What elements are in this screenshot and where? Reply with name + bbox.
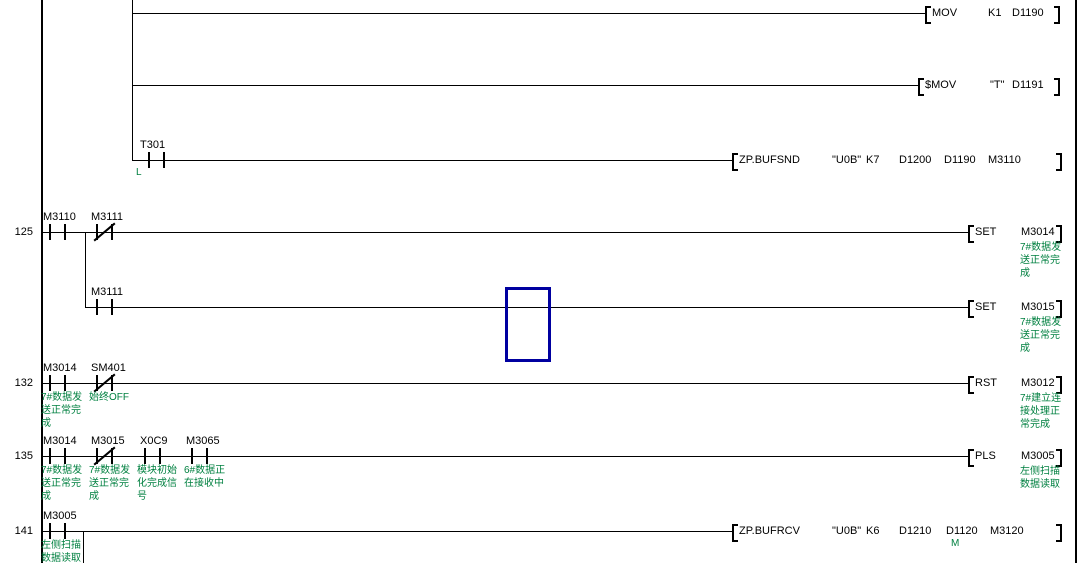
- ladder-editor-canvas: MOV K1 D1190 $MOV "T" D1191 T301 L ZP.BU…: [0, 0, 1080, 563]
- instruction-open-bracket: [732, 153, 738, 171]
- contact-m3111-nc[interactable]: [94, 224, 116, 240]
- rung-number-125: 125: [5, 226, 33, 238]
- instruction-open-bracket: [925, 6, 931, 24]
- contact-t301[interactable]: [146, 152, 168, 168]
- rung-line-141: [42, 531, 732, 532]
- annotation-contact-m3014: 7#数据发送正常完成: [41, 391, 86, 430]
- instruction-close-bracket: [1054, 6, 1060, 24]
- rung-number-132: 132: [5, 377, 33, 389]
- instruction-close-bracket: [1054, 78, 1060, 96]
- rung-line-135: [42, 456, 968, 457]
- contact-m3014[interactable]: [47, 375, 69, 391]
- annotation-contact-m3065: 6#数据正在接收中: [184, 464, 229, 490]
- contact-label-x0c9: X0C9: [140, 435, 168, 447]
- instruction-bufsnd[interactable]: ZP.BUFSND: [739, 154, 800, 167]
- rung-line-smov: [132, 85, 918, 86]
- annotation-m3015: 7#数据发送正常完成: [1020, 316, 1065, 355]
- instruction-bufrcv-arg3[interactable]: D1210: [899, 525, 931, 538]
- instruction-smov-arg2[interactable]: D1191: [1012, 79, 1044, 92]
- coil-device-m3005[interactable]: M3005: [1021, 450, 1055, 463]
- annotation-contact-x0c9: 模块初始化完成信号: [137, 464, 182, 503]
- contact-t301-marker: L: [136, 167, 142, 178]
- coil-set-m3014[interactable]: SET: [975, 226, 996, 239]
- instruction-open-bracket: [918, 78, 924, 96]
- top-branch-rail: [132, 0, 133, 161]
- instruction-close-bracket: [1056, 153, 1062, 171]
- rung-line-125: [42, 232, 968, 233]
- instruction-bufrcv-arg2[interactable]: K6: [866, 525, 879, 538]
- coil-open-bracket: [968, 225, 974, 243]
- rung-number-141: 141: [5, 525, 33, 537]
- contact-m3014-2[interactable]: [47, 448, 69, 464]
- instruction-bufrcv-arg1[interactable]: "U0B": [832, 525, 861, 538]
- annotation-m3014: 7#数据发送正常完成: [1020, 241, 1065, 280]
- contact-label-m3065: M3065: [186, 435, 220, 447]
- coil-open-bracket: [968, 449, 974, 467]
- contact-label-m3015-nc: M3015: [91, 435, 125, 447]
- contact-label-sm401-nc: SM401: [91, 362, 126, 374]
- annotation-contact-m3015: 7#数据发送正常完成: [89, 464, 134, 503]
- annotation-contact-m3005: 左侧扫描数据读取: [41, 539, 86, 563]
- contact-m3015-nc[interactable]: [94, 448, 116, 464]
- coil-device-m3015[interactable]: M3015: [1021, 301, 1055, 314]
- coil-open-bracket: [968, 300, 974, 318]
- contact-label-m3014: M3014: [43, 362, 77, 374]
- contact-label-m3005: M3005: [43, 510, 77, 522]
- branch-line-141: [83, 531, 84, 563]
- rung-line-132: [42, 383, 968, 384]
- contact-label-t301: T301: [140, 139, 165, 151]
- contact-m3110[interactable]: [47, 224, 69, 240]
- annotation-m3012: 7#建立连接处理正常完成: [1020, 392, 1065, 431]
- right-power-rail: [1075, 0, 1077, 563]
- instruction-bufsnd-arg4[interactable]: D1190: [944, 154, 976, 167]
- contact-label-m3014-2: M3014: [43, 435, 77, 447]
- coil-pls-m3005[interactable]: PLS: [975, 450, 996, 463]
- annotation-contact-sm401: 始终OFF: [89, 391, 137, 404]
- contact-x0c9[interactable]: [142, 448, 164, 464]
- annotation-contact-m3014-2: 7#数据发送正常完成: [41, 464, 86, 503]
- rung-line-mov: [132, 13, 925, 14]
- instruction-bufrcv[interactable]: ZP.BUFRCV: [739, 525, 800, 538]
- instruction-mov-arg1[interactable]: K1: [988, 7, 1001, 20]
- annotation-m3005: 左侧扫描数据读取: [1020, 465, 1065, 491]
- contact-label-m3111: M3111: [91, 286, 123, 298]
- contact-m3005[interactable]: [47, 523, 69, 539]
- rung-number-135: 135: [5, 450, 33, 462]
- instruction-mov[interactable]: MOV: [932, 7, 957, 20]
- rung-line-bufsnd: [132, 160, 732, 161]
- coil-set-m3015[interactable]: SET: [975, 301, 996, 314]
- instruction-bufsnd-arg5[interactable]: M3110: [988, 154, 1021, 167]
- coil-device-m3014[interactable]: M3014: [1021, 226, 1055, 239]
- instruction-open-bracket: [732, 524, 738, 542]
- contact-label-m3111-nc: M3111: [91, 211, 123, 223]
- coil-open-bracket: [968, 376, 974, 394]
- instruction-mov-arg2[interactable]: D1190: [1012, 7, 1044, 20]
- contact-m3111[interactable]: [94, 299, 116, 315]
- instruction-bufrcv-arg5[interactable]: M3120: [990, 525, 1024, 538]
- contact-sm401-nc[interactable]: [94, 375, 116, 391]
- coil-rst-m3012[interactable]: RST: [975, 377, 997, 390]
- edit-cursor-selection: [505, 287, 551, 362]
- coil-device-m3012[interactable]: M3012: [1021, 377, 1055, 390]
- contact-m3065[interactable]: [189, 448, 211, 464]
- contact-label-m3110: M3110: [43, 211, 76, 223]
- instruction-close-bracket: [1056, 524, 1062, 542]
- branch-line-125: [85, 232, 86, 308]
- instruction-bufsnd-arg2[interactable]: K7: [866, 154, 879, 167]
- instruction-smov-arg1[interactable]: "T": [990, 79, 1005, 92]
- instruction-bufrcv-arg4[interactable]: D1120: [946, 525, 978, 538]
- instruction-bufsnd-arg3[interactable]: D1200: [899, 154, 931, 167]
- instruction-smov[interactable]: $MOV: [925, 79, 956, 92]
- instruction-bufsnd-arg1[interactable]: "U0B": [832, 154, 861, 167]
- instruction-bufrcv-arg4-marker: M: [951, 538, 959, 549]
